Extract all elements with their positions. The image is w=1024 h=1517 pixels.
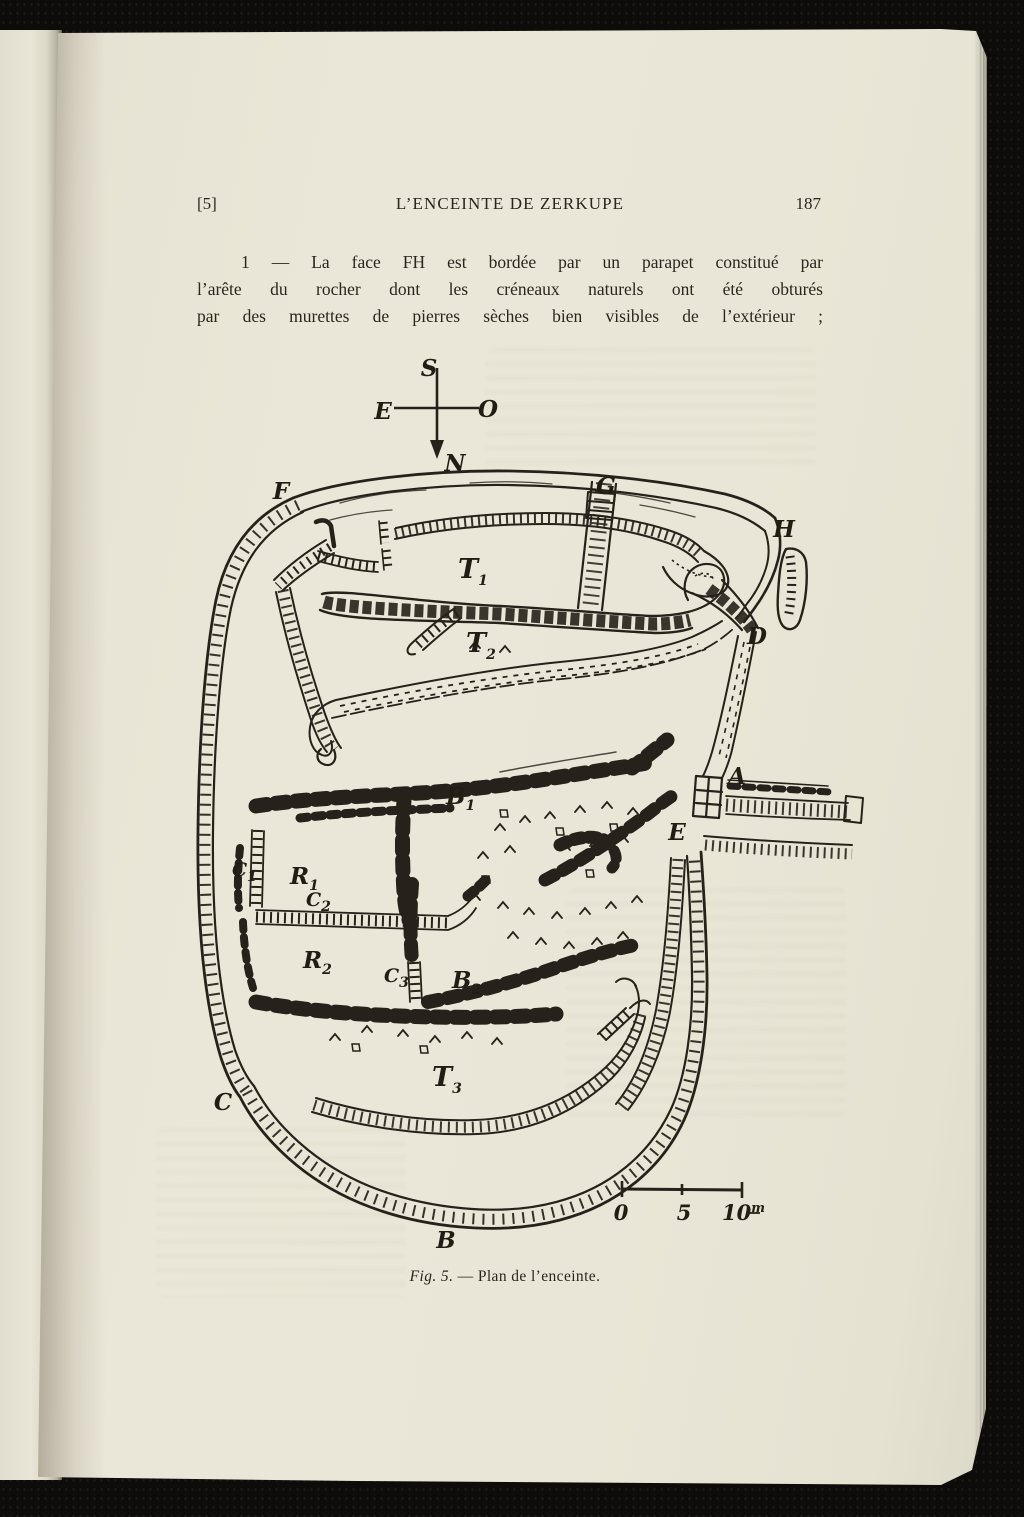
figure-caption-number: Fig. 5. [410, 1268, 454, 1285]
paragraph-line: l’arête du rocher dont les créneaux natu… [197, 276, 823, 303]
plan-label-h: H [772, 516, 796, 543]
plan-label-c: C [214, 1089, 233, 1116]
compass-rose: S E O N [373, 355, 498, 477]
plan-label-g: G [596, 473, 616, 500]
plan-label-b2: B2 [451, 967, 481, 998]
scale-tick-5: 5 [677, 1200, 692, 1225]
scale-tick-0: 0 [614, 1200, 629, 1225]
gate-d-a-e [693, 632, 863, 854]
plan-label-c3: C3 [384, 965, 409, 991]
running-title: L’ENCEINTE DE ZERKUPE [197, 194, 823, 214]
figure-caption-text: Plan de l’enceinte. [478, 1268, 601, 1285]
plan-label-e: E [667, 819, 686, 846]
terrace-walls [316, 482, 758, 654]
page-number: 187 [796, 194, 822, 214]
scale-bar: 0 5 10m [614, 1181, 765, 1225]
plan-label-r2: R2 [302, 947, 332, 978]
plan-label-b: B [435, 1227, 455, 1254]
figure-caption-sep: — [458, 1268, 474, 1285]
page-header: [5] L’ENCEINTE DE ZERKUPE 187 [197, 194, 823, 220]
plan-label-t1: T1 [458, 554, 488, 589]
figure-caption: Fig. 5. — Plan de l’enceinte. [36, 1268, 974, 1286]
enceinte-plan-figure: S E O N [150, 345, 895, 1260]
plan-label-f: F [272, 478, 291, 505]
plan-label-d: D [746, 623, 767, 650]
plan-label-a: A [726, 763, 746, 790]
compass-west: O [478, 396, 498, 423]
compass-south: S [421, 355, 438, 382]
plan-label-t2: T2 [466, 628, 496, 663]
compass-east: E [373, 398, 392, 425]
body-paragraph: 1 — La face FH est bordée par un parapet… [197, 249, 823, 331]
paragraph-line: par des murettes de pierres sèches bien … [197, 303, 823, 330]
paragraph-line: 1 — La face FH est bordée par un parapet… [197, 249, 823, 276]
scanned-book-photo: [5] L’ENCEINTE DE ZERKUPE 187 1 — La fac… [0, 0, 1024, 1517]
plan-label-t3: T3 [432, 1062, 462, 1097]
book-page: [5] L’ENCEINTE DE ZERKUPE 187 1 — La fac… [36, 28, 988, 1488]
